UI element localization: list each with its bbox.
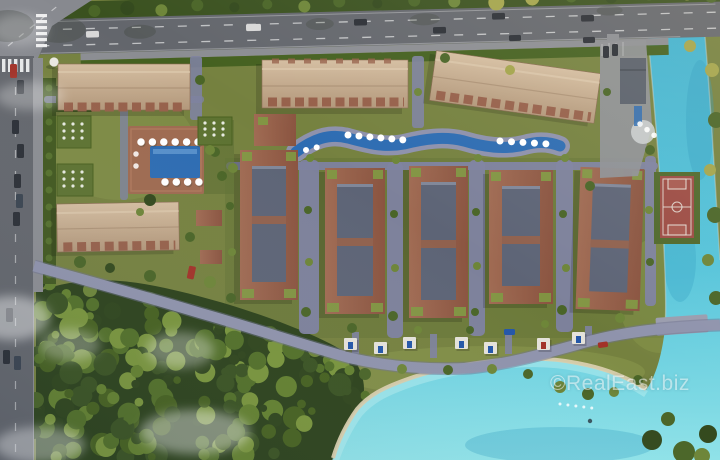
watermark: ©RealEast.biz	[550, 372, 720, 396]
masterplan-aerial-render: ©RealEast.biz	[0, 0, 720, 460]
